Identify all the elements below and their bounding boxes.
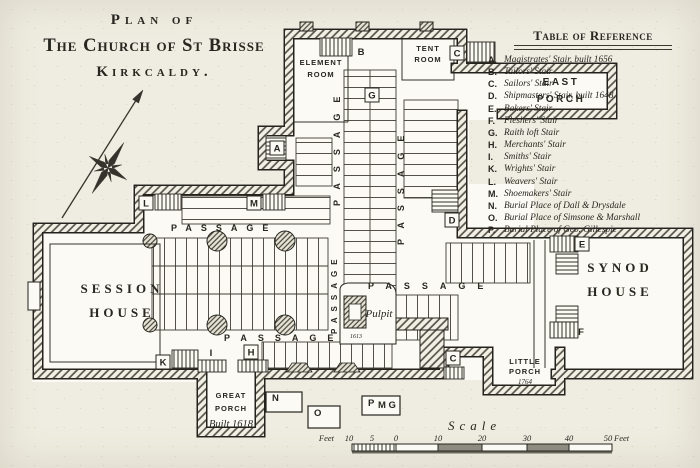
reference-row: N.Burial Place of Dall & Drysdale: [488, 200, 698, 212]
reference-row: B.Tailors' Stair: [488, 66, 698, 78]
scale-title: Scale: [448, 418, 501, 433]
reference-row: L.Weavers' Stair: [488, 176, 698, 188]
stair-a: A: [274, 144, 281, 155]
reference-rule: [514, 45, 672, 50]
compass-rose: [62, 90, 143, 218]
stair-m: M: [250, 199, 258, 210]
title-line-1: Plan of: [6, 12, 302, 29]
scale-feet-left: Feet: [318, 433, 335, 443]
passage-vertical-south: PASSAGE: [330, 253, 339, 334]
scanned-church-plan: Pulpit 1613 ELEMENT ROOM TENT ROOM EAST …: [0, 0, 700, 468]
table-of-reference: Table of Reference A.Magistrates' Stair,…: [488, 28, 698, 236]
reference-row: M.Shoemakers' Stair: [488, 188, 698, 200]
reference-title: Table of Reference: [488, 28, 698, 44]
element-room-label: ELEMENT: [300, 58, 343, 67]
svg-text:HOUSE: HOUSE: [587, 284, 653, 299]
stair-f: F: [578, 327, 584, 338]
stair-c-south: C: [450, 354, 457, 365]
reference-row: O.Burial Place of Simsone & Marshall: [488, 212, 698, 224]
pulpit-year: 1613: [350, 334, 362, 340]
stair-h: H: [248, 348, 255, 359]
stair-d: D: [449, 216, 456, 227]
reference-row: F.Fleshers' Stair: [488, 115, 698, 127]
session-house-recess: [28, 282, 40, 310]
svg-text:ROOM: ROOM: [307, 70, 334, 79]
scale-bar: Scale Feet 10 5 0 10 20 30 40 50 Feet: [318, 418, 630, 454]
stair-e: E: [579, 240, 585, 251]
session-house-label: SESSION: [81, 281, 164, 296]
stair-l: L: [143, 199, 149, 210]
pulpit-label: Pulpit: [365, 308, 394, 320]
burial-o: O: [314, 408, 321, 419]
reference-row: D.Shipmasters' Stair, built 1648.: [488, 90, 698, 102]
svg-text:5: 5: [370, 433, 374, 443]
svg-text:40: 40: [565, 433, 574, 443]
passage-lower: PASSAGE: [224, 333, 344, 343]
burial-p-initials: M G: [378, 400, 396, 411]
passage-vertical-west: PASSAGE: [332, 86, 342, 206]
little-porch-label: LITTLE: [509, 357, 540, 366]
reference-row: P.Burial Place of Geo. Gillespie: [488, 224, 698, 236]
stair-b: B: [358, 47, 365, 58]
stair-g: G: [368, 91, 375, 102]
reference-row: K.Wrights' Stair: [488, 163, 698, 175]
title-line-3: Kirkcaldy.: [6, 64, 302, 81]
passage-vertical-east: PASSAGE: [396, 125, 406, 245]
reference-row: A.Magistrates' Stair, built 1656: [488, 54, 698, 66]
passage-upper: PASSAGE: [171, 223, 277, 233]
stair-i: I: [210, 348, 213, 359]
title-line-2: The Church of St Brisse: [6, 36, 302, 57]
reference-row: C.Sailors' Stair: [488, 78, 698, 90]
tent-room-label: TENT: [416, 44, 440, 53]
pulpit: Pulpit 1613: [340, 283, 396, 344]
great-porch-label: GREAT: [216, 391, 247, 400]
reference-row: H.Merchants' Stair: [488, 139, 698, 151]
reference-row: E.Bakers' Stair: [488, 103, 698, 115]
svg-text:20: 20: [478, 433, 487, 443]
reference-row: G.Raith loft Stair: [488, 127, 698, 139]
svg-text:30: 30: [522, 433, 532, 443]
scale-feet-right: Feet: [613, 433, 630, 443]
svg-text:PORCH: PORCH: [509, 367, 541, 376]
burial-p: P: [368, 398, 375, 409]
great-porch-year: Built 1618: [209, 419, 254, 430]
passage-middle: PASSAGE: [368, 281, 495, 291]
stair-c-north: C: [454, 49, 461, 60]
synod-house-label: SYNOD: [587, 260, 653, 275]
burial-n: N: [272, 393, 279, 404]
svg-text:ROOM: ROOM: [414, 55, 441, 64]
svg-text:0: 0: [394, 433, 399, 443]
plan-title: Plan of The Church of St Brisse Kirkcald…: [6, 12, 302, 81]
svg-text:HOUSE: HOUSE: [89, 305, 155, 320]
burial-boxes: N O P M G: [266, 392, 400, 428]
svg-text:10: 10: [345, 433, 354, 443]
svg-text:PORCH: PORCH: [215, 404, 247, 413]
svg-text:50: 50: [604, 433, 613, 443]
stair-k: K: [160, 358, 167, 369]
reference-row: I.Smiths' Stair: [488, 151, 698, 163]
svg-text:10: 10: [434, 433, 443, 443]
little-porch-year: 1764: [518, 378, 533, 386]
